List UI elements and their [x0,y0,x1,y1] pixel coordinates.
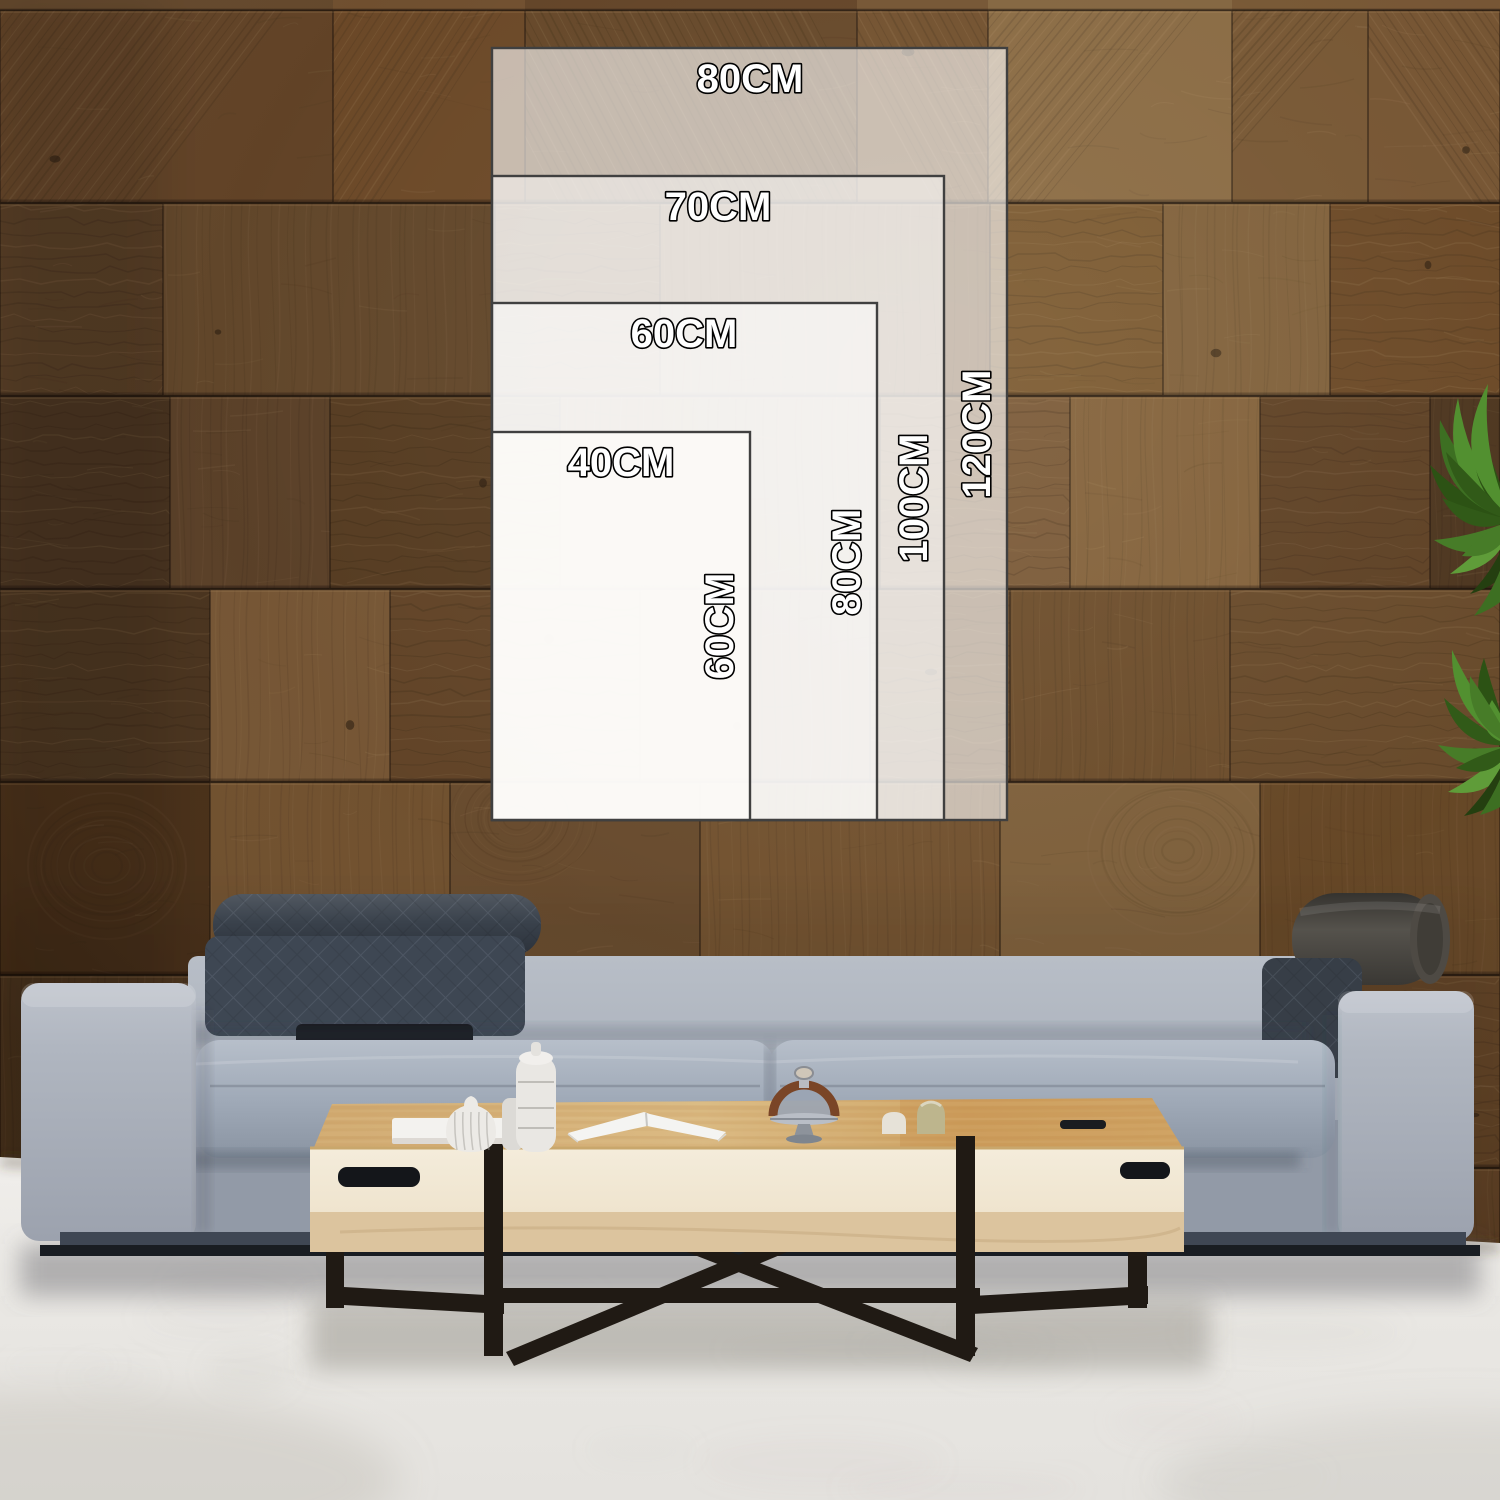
svg-text:80CM: 80CM [697,57,804,101]
svg-text:80CM: 80CM [825,509,869,616]
svg-text:70CM: 70CM [665,185,772,229]
svg-text:60CM: 60CM [631,312,738,356]
svg-text:120CM: 120CM [955,370,999,499]
svg-text:60CM: 60CM [698,573,742,680]
svg-text:100CM: 100CM [892,434,936,563]
svg-text:40CM: 40CM [568,441,675,485]
